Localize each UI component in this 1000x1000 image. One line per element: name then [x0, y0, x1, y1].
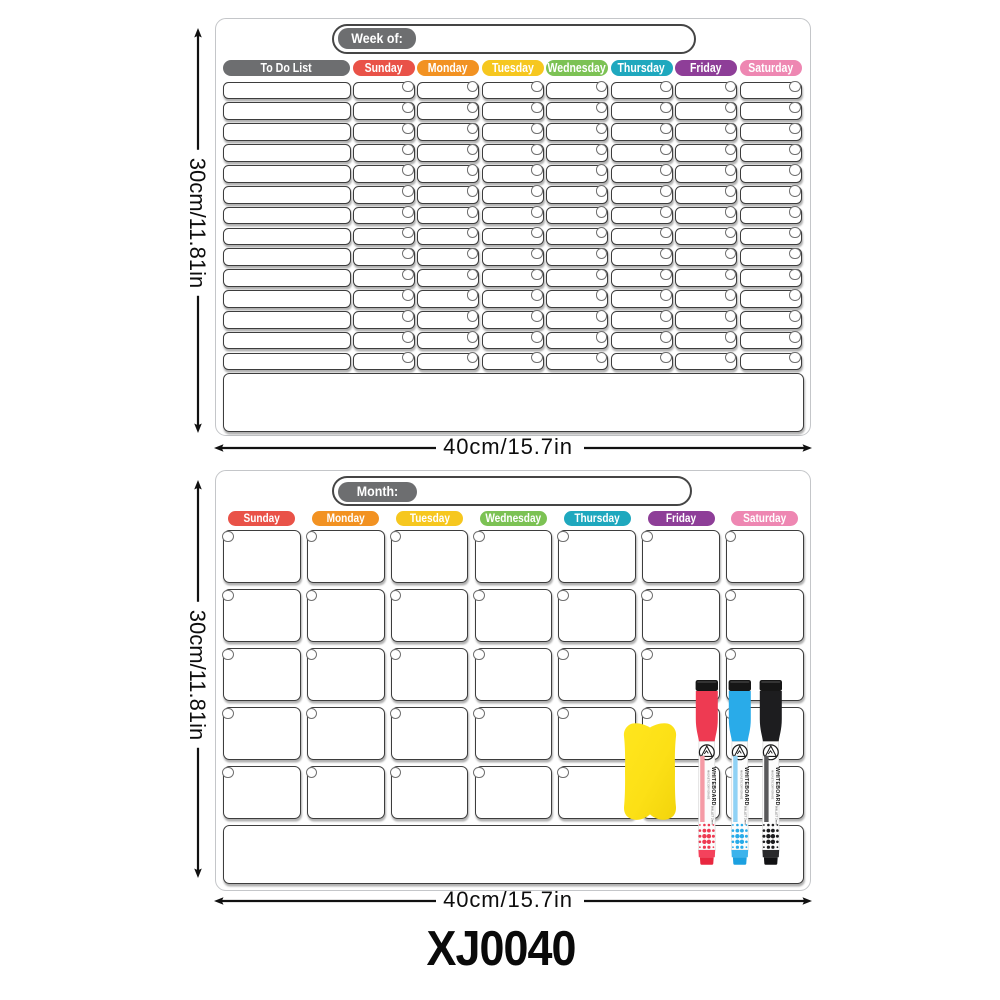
svg-text:WHITEBOARD: WHITEBOARD: [710, 767, 716, 806]
svg-text:BULLET 2mm: BULLET 2mm: [774, 806, 778, 825]
svg-text:MAGNETIC DRY ERASE: MAGNETIC DRY ERASE: [770, 770, 774, 800]
svg-text:MAGNETIC DRY ERASE: MAGNETIC DRY ERASE: [706, 770, 710, 800]
svg-text:WHITEBOARD: WHITEBOARD: [743, 767, 749, 806]
svg-text:BULLET 2mm: BULLET 2mm: [710, 806, 714, 825]
svg-text:BULLET 2mm: BULLET 2mm: [744, 806, 748, 825]
svg-text:MAGNETIC DRY ERASE: MAGNETIC DRY ERASE: [739, 770, 743, 800]
svg-text:WHITEBOARD: WHITEBOARD: [774, 767, 780, 806]
